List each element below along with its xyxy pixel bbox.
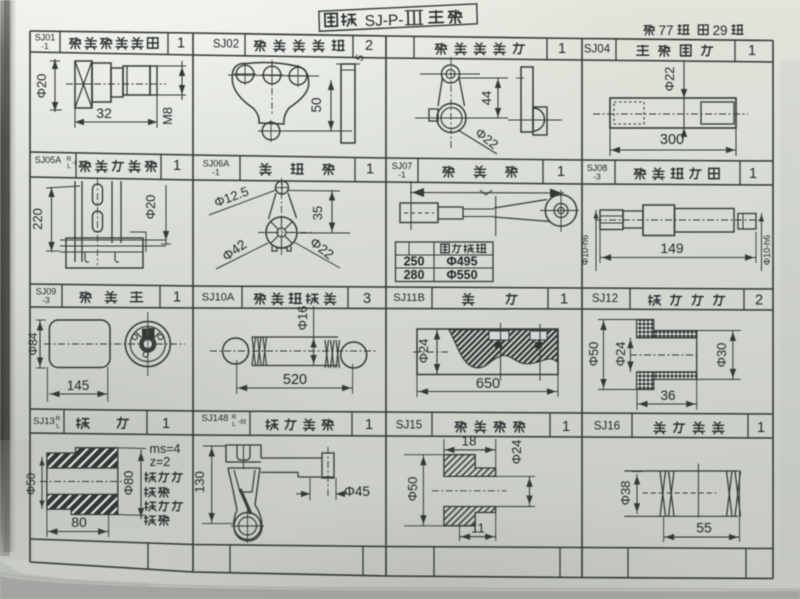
svg-text:11: 11 [471,521,485,536]
svg-text:Φ550: Φ550 [446,268,477,282]
svg-text:50: 50 [309,97,324,112]
svg-text:SJ15: SJ15 [396,420,422,432]
svg-text:1: 1 [177,36,185,52]
svg-text:SJ-P-: SJ-P- [365,12,404,30]
svg-text:M8: M8 [160,107,175,125]
svg-text:L: L [67,163,71,170]
svg-text:32: 32 [96,105,112,121]
svg-text:1: 1 [173,290,181,306]
svg-text:Φ24: Φ24 [613,342,628,367]
svg-text:44: 44 [479,91,494,105]
svg-text:280: 280 [404,268,425,282]
svg-text:1: 1 [748,43,756,59]
svg-text:SJ05A: SJ05A [35,155,62,165]
svg-text:Φ10-h6: Φ10-h6 [762,235,772,265]
svg-text:149: 149 [660,240,684,256]
svg-text:-3: -3 [42,295,50,305]
svg-text:Φ22: Φ22 [472,125,501,152]
svg-text:1: 1 [749,166,757,182]
svg-text:-I: -I [72,160,76,167]
svg-text:SJ10A: SJ10A [202,292,235,304]
svg-text:35: 35 [310,206,325,220]
svg-text:300: 300 [660,132,684,148]
svg-text:Φ20: Φ20 [143,195,158,220]
svg-text:220: 220 [30,208,45,230]
svg-text:R: R [232,414,237,421]
svg-text:1: 1 [365,417,373,433]
svg-text:145: 145 [67,378,90,393]
svg-text:SJ04: SJ04 [584,44,611,56]
svg-text:Φ10-h6: Φ10-h6 [580,235,590,265]
svg-text:520: 520 [283,372,307,388]
svg-text:L: L [56,423,60,430]
svg-text:77: 77 [658,23,673,38]
svg-text:130: 130 [192,471,207,493]
svg-text:Φ45: Φ45 [344,484,370,499]
svg-text:29: 29 [712,23,727,38]
svg-text:Φ50: Φ50 [26,473,38,495]
svg-text:L: L [232,421,236,428]
svg-text:SJ148: SJ148 [202,413,229,424]
svg-text:Φ20: Φ20 [34,74,49,99]
svg-text:55: 55 [696,520,712,536]
svg-text:Φ24: Φ24 [416,339,431,364]
svg-text:650: 650 [476,376,500,392]
svg-text:5: 5 [353,53,366,63]
svg-text:Φ24: Φ24 [509,440,524,465]
svg-text:ms=4: ms=4 [150,442,181,456]
svg-text:1: 1 [173,158,181,174]
svg-text:1: 1 [560,292,568,308]
svg-text:z=2: z=2 [150,455,171,469]
svg-text:Φ30: Φ30 [714,343,729,368]
svg-text:-3: -3 [593,172,601,182]
svg-text:2: 2 [365,38,373,54]
svg-text:SJ13: SJ13 [33,416,55,427]
svg-text:Φ495: Φ495 [446,255,477,269]
svg-text:1: 1 [366,162,374,178]
svg-text:2: 2 [755,293,763,309]
svg-text:SJ12: SJ12 [592,293,618,305]
svg-text:Φ80: Φ80 [121,471,136,496]
svg-text:36: 36 [660,388,675,403]
svg-text:Φ50: Φ50 [405,477,420,502]
svg-text:Φ50: Φ50 [586,342,601,367]
svg-text:-1: -1 [398,170,406,180]
svg-text:80: 80 [71,514,87,530]
svg-text:-III: -III [238,419,246,426]
svg-text:SJ16: SJ16 [594,421,620,433]
svg-text:Φ22: Φ22 [662,67,677,92]
svg-text:Φ38: Φ38 [618,481,633,506]
svg-text:-1: -1 [212,167,220,177]
svg-text:R: R [56,416,61,423]
svg-text:1: 1 [162,416,170,432]
svg-text:250: 250 [404,255,425,269]
svg-text:3: 3 [363,291,371,307]
svg-text:1: 1 [558,41,566,57]
svg-text:Φ16: Φ16 [295,306,310,331]
svg-text:Φ84: Φ84 [26,332,40,355]
svg-text:1: 1 [757,420,765,436]
svg-text:1: 1 [557,164,565,180]
svg-text:SJ02: SJ02 [213,39,239,51]
svg-text:-1: -1 [41,41,49,51]
svg-text:1: 1 [562,419,570,435]
svg-text:SJ11B: SJ11B [393,292,425,304]
svg-text:18: 18 [461,434,476,449]
